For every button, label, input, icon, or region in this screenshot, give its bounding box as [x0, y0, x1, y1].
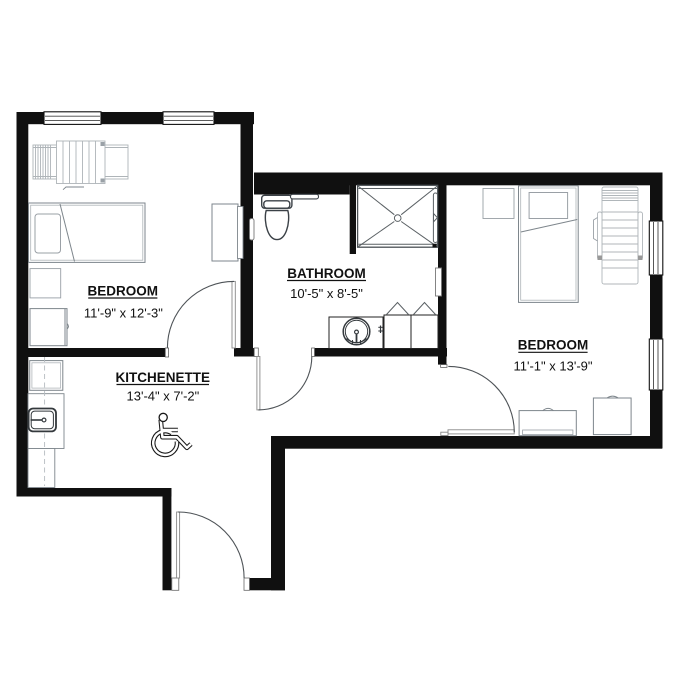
svg-text:11'-9" x 12'-3": 11'-9" x 12'-3": [84, 305, 163, 320]
svg-text:13'-4" x 7'-2": 13'-4" x 7'-2": [127, 388, 200, 403]
svg-text:10'-5" x 8'-5": 10'-5" x 8'-5": [290, 286, 363, 301]
svg-text:BEDROOM: BEDROOM: [518, 338, 589, 353]
svg-text:KITCHENETTE: KITCHENETTE: [116, 370, 211, 385]
svg-text:BATHROOM: BATHROOM: [287, 266, 366, 281]
svg-text:11'-1" x 13'-9": 11'-1" x 13'-9": [514, 358, 593, 373]
svg-text:BEDROOM: BEDROOM: [88, 284, 159, 299]
